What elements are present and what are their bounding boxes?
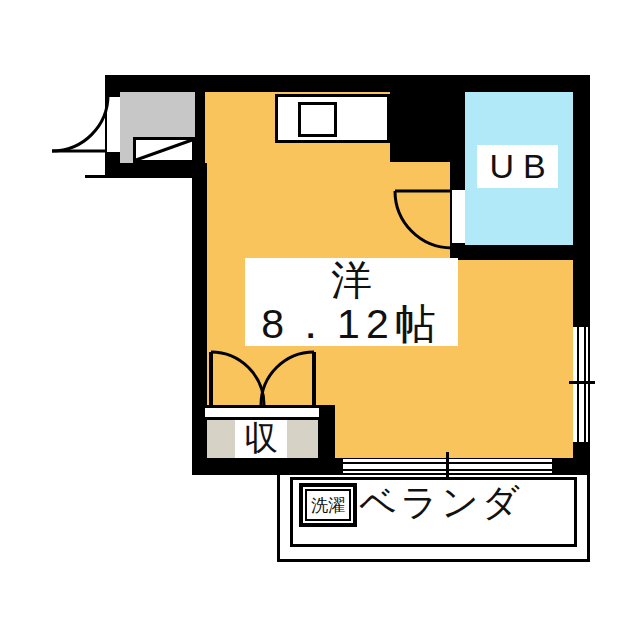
room-label: 洋 8．12帖 xyxy=(245,258,458,346)
unit-bath-doorway xyxy=(452,190,465,243)
closet-label: 収 xyxy=(235,420,287,458)
right-window-glass-line xyxy=(584,327,586,442)
laundry-label: 洗濯 xyxy=(305,489,351,521)
room-size-text: 8．12帖 xyxy=(261,302,441,346)
floorplan-canvas: 洋 8．12帖 UB 収 洗濯 ベランダ xyxy=(0,0,640,640)
wall-entry-room-divider xyxy=(195,92,205,163)
bottom-window-meeting-tick xyxy=(446,452,449,480)
wall-top xyxy=(105,75,590,92)
wall-stub-line xyxy=(85,175,105,178)
balcony-label: ベランダ xyxy=(352,481,530,525)
entrance-door-swing-icon xyxy=(52,95,108,151)
laundry-space-box: 洗濯 xyxy=(299,483,357,527)
shoe-cabinet xyxy=(133,137,195,163)
entrance-doorway xyxy=(107,97,120,152)
kitchen-sink xyxy=(298,102,337,137)
wall-kitchen-duct xyxy=(390,92,450,162)
right-window-meeting-tick xyxy=(569,381,595,384)
right-window-glass-line xyxy=(577,327,579,442)
room-type-text: 洋 xyxy=(331,258,372,302)
unit-bath-label: UB xyxy=(477,145,558,188)
wall-room-left xyxy=(192,163,207,475)
wall-unit-bath-bottom xyxy=(450,245,590,260)
